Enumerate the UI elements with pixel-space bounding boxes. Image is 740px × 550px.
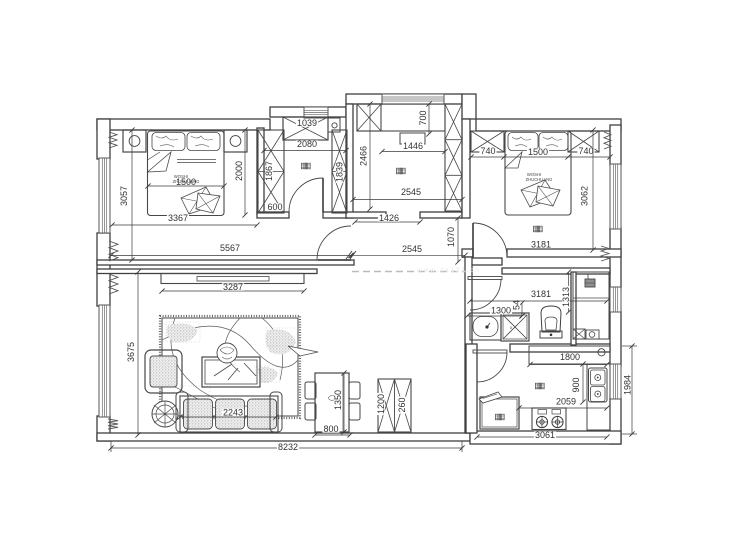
svg-text:3061: 3061 [535,430,555,440]
svg-text:1350: 1350 [333,390,343,410]
svg-text:1426: 1426 [379,213,399,223]
svg-text:3062: 3062 [580,186,590,206]
svg-text:3181: 3181 [531,289,551,299]
svg-text:8232: 8232 [278,442,298,452]
svg-text:800: 800 [323,424,338,434]
svg-text:1313: 1313 [561,287,571,307]
svg-text:740: 740 [578,146,593,156]
svg-text:1839: 1839 [335,162,345,182]
svg-text:3057: 3057 [119,186,129,206]
svg-text:1984: 1984 [623,375,633,395]
svg-text:54: 54 [512,300,522,310]
svg-text:700: 700 [418,110,428,125]
svg-text:1039: 1039 [297,118,317,128]
svg-text:3287: 3287 [223,282,243,292]
svg-text:260: 260 [397,397,407,412]
svg-text:2243: 2243 [223,408,243,418]
svg-text:740: 740 [480,146,495,156]
svg-text:w w w . z x 1 2 3 . c n: w w w . z x 1 2 3 . c n [416,267,479,274]
svg-text:2000: 2000 [234,161,244,181]
svg-text:ZHUCHUANG: ZHUCHUANG [526,177,553,182]
svg-text:1500: 1500 [176,177,196,187]
svg-text:1867: 1867 [264,161,274,181]
svg-text:900: 900 [571,377,581,392]
svg-text:1200: 1200 [376,394,386,414]
svg-text:1500: 1500 [528,147,548,157]
svg-text:3367: 3367 [168,213,188,223]
svg-text:600: 600 [267,202,282,212]
svg-text:2545: 2545 [402,244,422,254]
svg-text:2545: 2545 [401,187,421,197]
svg-text:3675: 3675 [126,342,136,362]
svg-text:2059: 2059 [556,397,576,407]
svg-text:1070: 1070 [446,227,456,247]
svg-text:5567: 5567 [220,243,240,253]
svg-text:2080: 2080 [297,139,317,149]
svg-text:1800: 1800 [560,352,580,362]
svg-text:3181: 3181 [531,240,551,250]
svg-text:1446: 1446 [403,141,423,151]
svg-text:2466: 2466 [359,146,369,166]
svg-text:1300: 1300 [491,306,511,316]
